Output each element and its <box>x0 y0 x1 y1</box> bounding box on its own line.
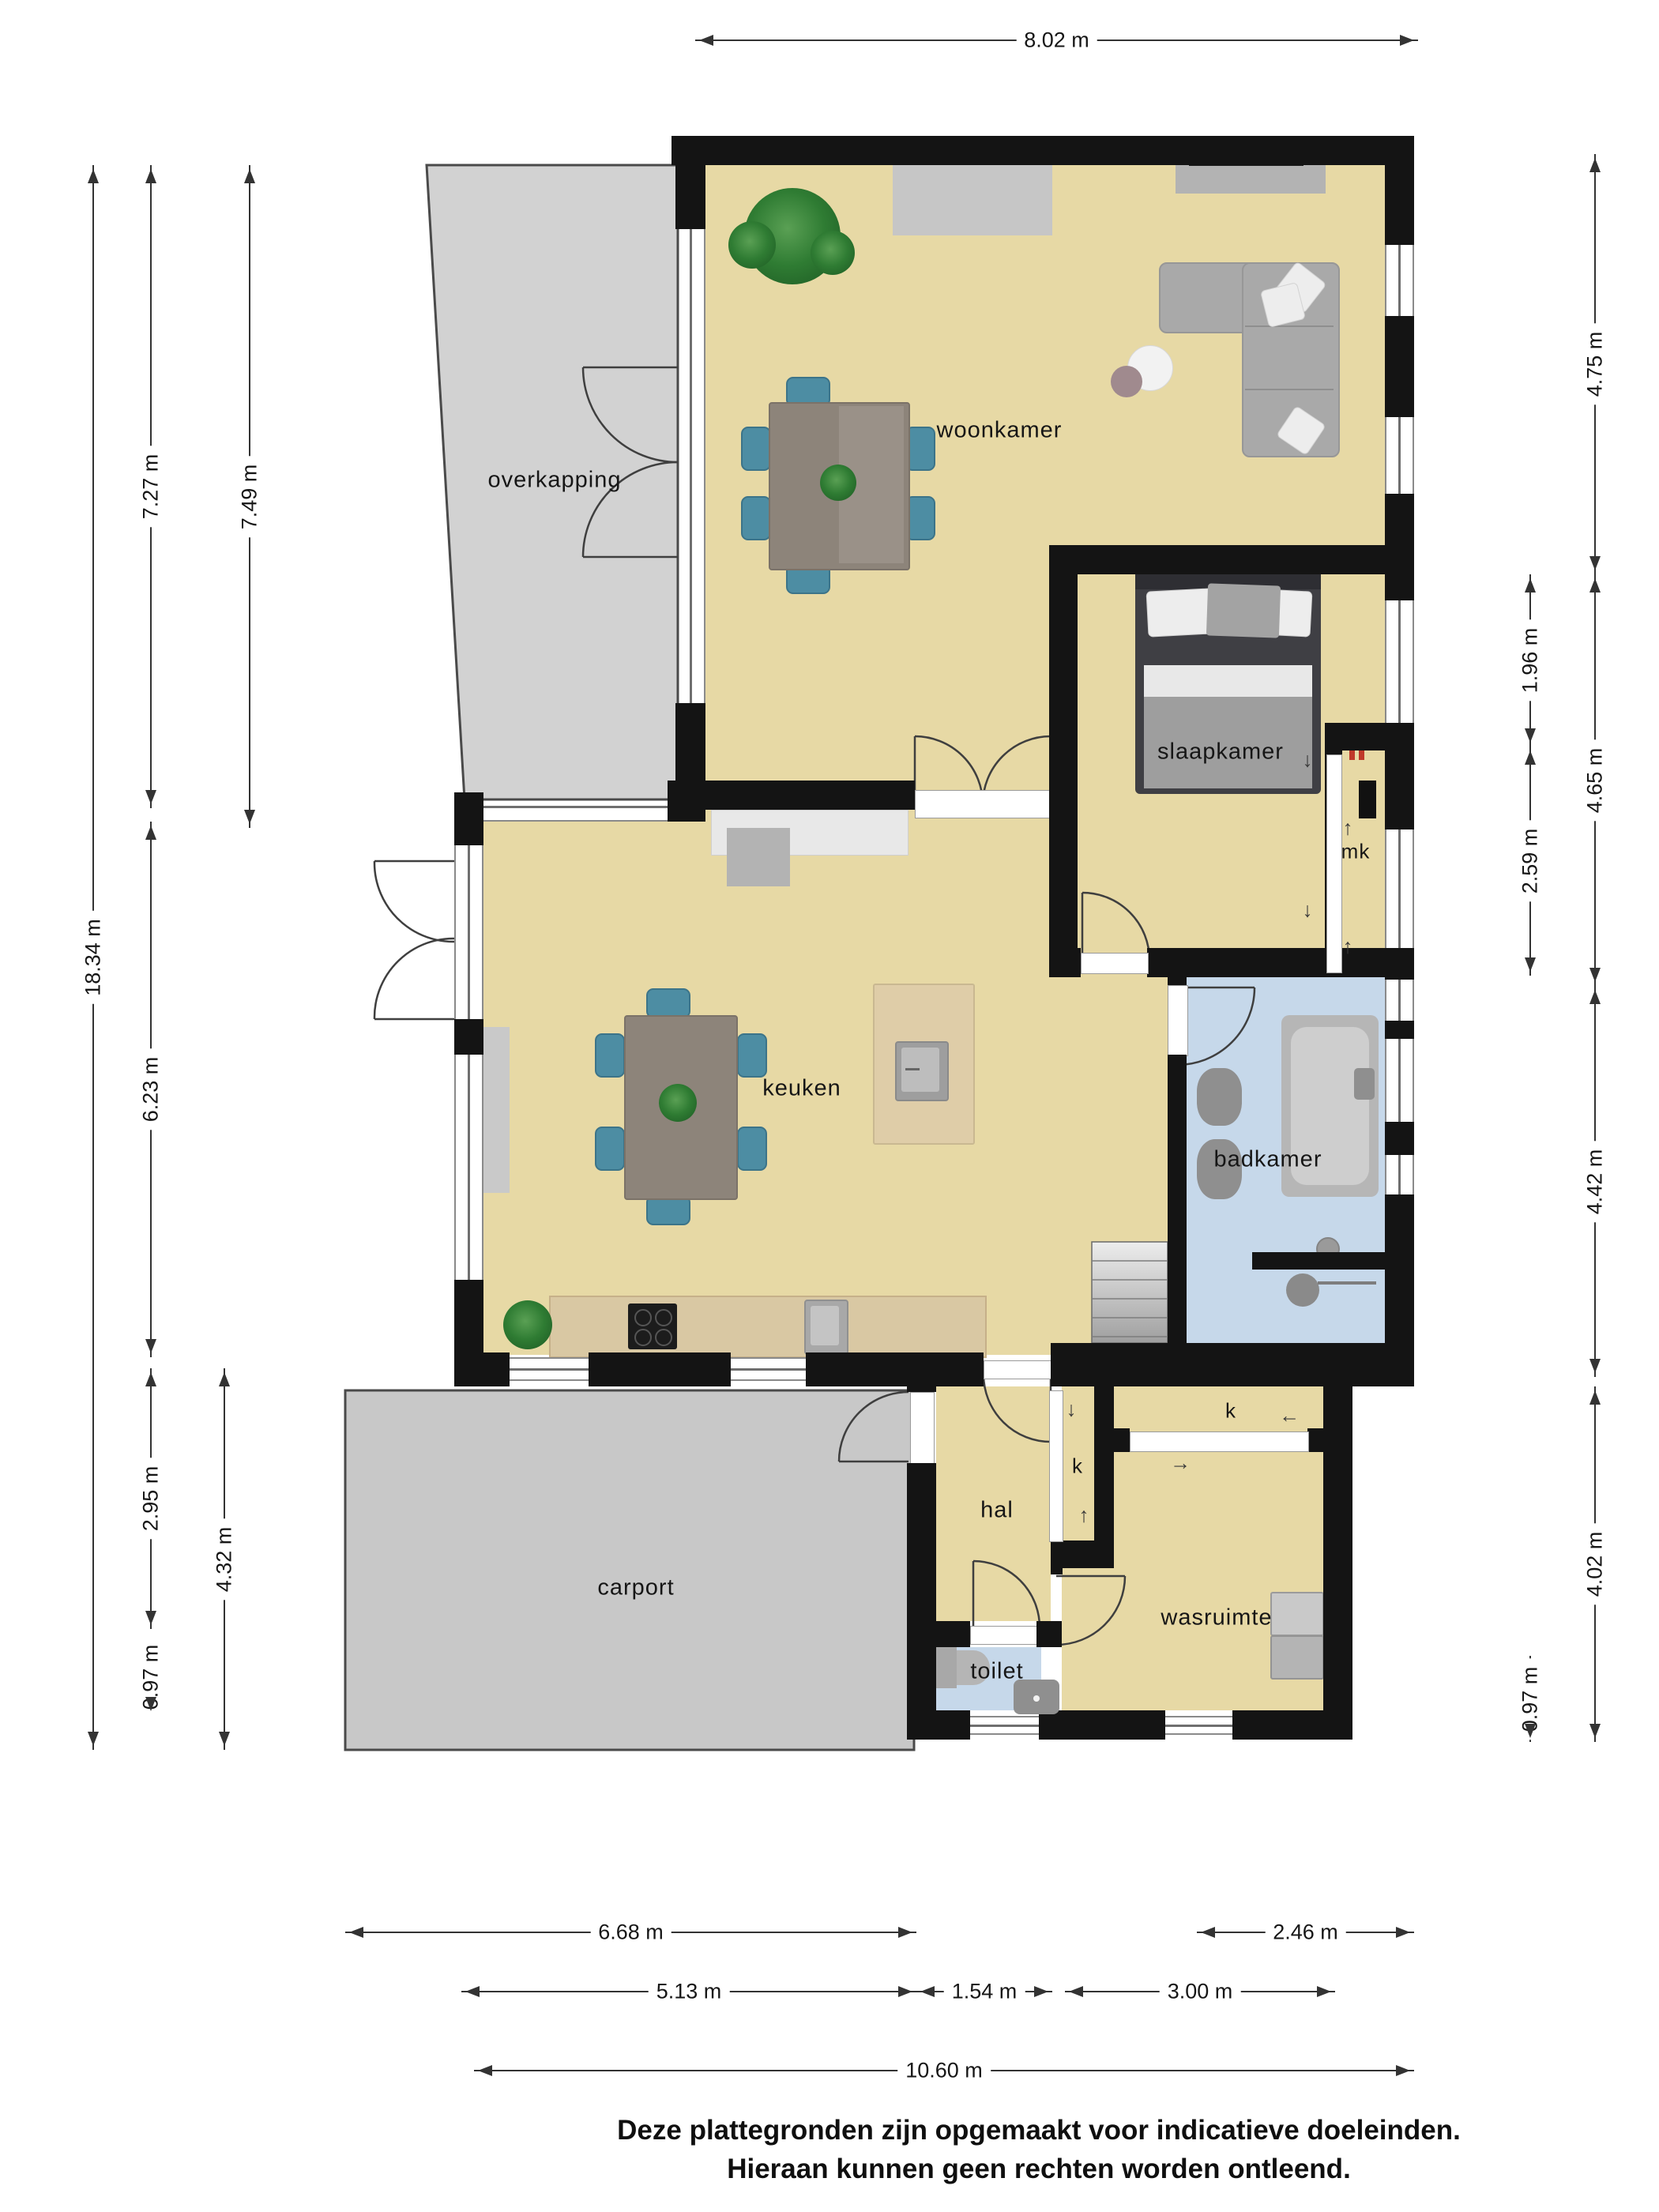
wall-hal-left <box>907 1386 936 1392</box>
kitchen-chair <box>646 988 690 1018</box>
dining-chair <box>741 496 771 540</box>
wall-slaapkamer-bottom <box>1049 948 1081 977</box>
room-label-wasruimte: wasruimte <box>1161 1605 1272 1631</box>
door-threshold-carport <box>910 1392 935 1465</box>
mk-sliding-door <box>1326 754 1342 973</box>
dryer <box>1270 1635 1324 1680</box>
room-label-keuken: keuken <box>762 1076 841 1102</box>
dimension-label: 8.02 m <box>1016 27 1097 55</box>
k2-slider-post <box>1114 1428 1130 1452</box>
window-right <box>1385 245 1414 316</box>
dimension-label: 1.96 m <box>1517 620 1544 702</box>
sofa-seam-2 <box>1245 389 1334 390</box>
wall-keuken-left <box>454 1019 483 1055</box>
room-label-k2: k <box>1225 1399 1236 1424</box>
dimension-label: 6.23 m <box>137 1049 165 1130</box>
window-right <box>1385 600 1414 723</box>
room-label-slaapkamer: slaapkamer <box>1157 739 1284 766</box>
window-bottom <box>970 1716 1039 1735</box>
bed-sheet <box>1144 665 1312 697</box>
dimension-label: 7.27 m <box>137 446 165 528</box>
mk-arrow-up-icon: ↑ <box>1343 935 1353 959</box>
side-stool <box>1111 366 1142 397</box>
meter-led-icon <box>1359 750 1364 760</box>
room-label-woonkamer: woonkamer <box>937 418 1063 444</box>
sofa-seam-1 <box>1245 325 1334 327</box>
dimension-label: 10.60 m <box>897 2057 991 2085</box>
dimension-label: 4.02 m <box>1582 1524 1609 1605</box>
wall-keuken-bottom <box>806 1352 984 1386</box>
dining-chair <box>741 427 771 471</box>
cooktop-burner <box>634 1329 652 1346</box>
wall-keuken-bottom <box>454 1352 510 1386</box>
window-right <box>1385 1155 1414 1194</box>
window-right <box>1385 829 1414 960</box>
kitchen-chair <box>595 1033 625 1078</box>
floorplan-canvas: ↓ ↑ ← → ↓ ↑ ↓ ↑ woonkamer overkapping sl… <box>0 0 1659 2212</box>
k2-slider-post <box>1307 1428 1323 1452</box>
dimension-right-4-42: 4.42 m <box>1594 986 1596 1377</box>
wall-corridor-bottom <box>1051 1343 1168 1386</box>
dimension-label: 5.13 m <box>649 1978 730 2006</box>
kitchen-chair <box>737 1033 767 1078</box>
dimension-left-0-97: 0.97 m <box>150 1639 152 1715</box>
dimension-top-8-02: 8.02 m <box>695 39 1418 41</box>
cooktop-burner <box>634 1309 652 1326</box>
counter-sink-basin <box>811 1306 839 1345</box>
door-threshold-slaapkamer <box>1081 953 1149 974</box>
room-label-k1: k <box>1072 1454 1083 1479</box>
window-right <box>1385 417 1414 494</box>
dimension-label: 1.54 m <box>944 1978 1025 2006</box>
dimension-right-4-75: 4.75 m <box>1594 154 1596 574</box>
dimension-bottom-3-00: 3.00 m <box>1065 1991 1335 1992</box>
door-threshold-badkamer <box>1168 985 1188 1056</box>
shower-arm-icon <box>1318 1281 1376 1285</box>
dimension-left-18-34: 18.34 m <box>92 165 94 1750</box>
dimension-left-7-27: 7.27 m <box>150 165 152 808</box>
door-threshold-toilet <box>970 1626 1038 1645</box>
dimension-right-2-59: 2.59 m <box>1529 747 1531 976</box>
wall-hal-left <box>907 1463 936 1740</box>
mk-arrow-down-icon: ↓ <box>1303 748 1313 773</box>
door-threshold-woonkamer-keuken <box>915 790 1052 818</box>
cooktop-burner <box>655 1329 672 1346</box>
window-right <box>1385 1039 1414 1122</box>
wall-k1-bottom <box>1051 1540 1114 1568</box>
window-keuken-left <box>454 1055 483 1280</box>
kitchen-plant-icon <box>503 1300 552 1349</box>
dimension-label: 0.97 m <box>1517 1658 1544 1740</box>
mk-arrow-down-icon: ↓ <box>1303 898 1313 923</box>
dimension-bottom-1-54: 1.54 m <box>916 1991 1052 1992</box>
kitchen-table-plant-icon <box>659 1084 697 1122</box>
kitchen-cabinet <box>727 828 790 886</box>
wall-bottom <box>907 1710 970 1740</box>
wall-keuken-bottom <box>589 1352 731 1386</box>
dimension-label: 18.34 m <box>80 911 107 1004</box>
k2-sliding-door <box>1130 1431 1309 1452</box>
toilet-sink-dot <box>1033 1695 1040 1702</box>
wall-keuken-left <box>454 1280 483 1355</box>
slide-arrow-left-icon: ← <box>1279 1404 1300 1428</box>
room-label-toilet: toilet <box>970 1659 1023 1685</box>
dimension-bottom-10-60: 10.60 m <box>474 2070 1414 2071</box>
island-faucet-icon <box>905 1068 920 1070</box>
window-bottom <box>1165 1716 1232 1735</box>
kitchen-counter <box>549 1296 987 1358</box>
meter-led-icon <box>1349 750 1355 760</box>
wall-right <box>1385 136 1414 245</box>
staircase <box>1092 1242 1168 1343</box>
dimension-bottom-6-68: 6.68 m <box>345 1932 916 1933</box>
dimension-label: 4.42 m <box>1582 1141 1609 1222</box>
window-right <box>1385 980 1414 1021</box>
mk-arrow-up-icon: ↑ <box>1343 816 1353 841</box>
room-label-mk: mk <box>1341 840 1371 864</box>
wall-overkapping-corner <box>668 781 705 822</box>
dimension-left-4-32: 4.32 m <box>224 1368 225 1750</box>
wall-right <box>1385 1122 1414 1155</box>
wall-woonkamer-keuken <box>705 781 915 810</box>
room-label-hal: hal <box>980 1498 1014 1524</box>
slide-arrow-up-icon: ↑ <box>1079 1503 1089 1528</box>
kitchen-chair <box>737 1127 767 1171</box>
washer <box>1270 1592 1324 1636</box>
wall-left-glass-end <box>675 165 705 229</box>
bathroom-sink <box>1197 1068 1242 1126</box>
carport-area <box>345 1390 914 1750</box>
dimension-right-0-97: 0.97 m <box>1529 1656 1531 1742</box>
window-keuken-bottom <box>731 1357 806 1381</box>
shower-drain-icon <box>1286 1273 1319 1307</box>
slide-arrow-down-icon: ↓ <box>1066 1398 1077 1422</box>
wall-right <box>1385 316 1414 417</box>
wall-shower-stub <box>1252 1252 1385 1270</box>
dimension-label: 3.00 m <box>1160 1978 1241 2006</box>
rug <box>893 164 1052 235</box>
dimension-left-7-49: 7.49 m <box>249 165 250 828</box>
wall-hal-wasruimte <box>1051 1568 1063 1574</box>
table-plant-icon <box>820 465 856 501</box>
wall-slaapkamer-left <box>1049 545 1078 977</box>
bathtub-faucet-icon <box>1354 1068 1375 1100</box>
wall-wasruimte-right <box>1323 1386 1352 1740</box>
wall-badkamer-bottom <box>1168 1343 1414 1386</box>
large-plant-leaf <box>811 231 855 275</box>
large-plant-leaf <box>728 221 776 269</box>
toilet-tank <box>936 1647 957 1688</box>
dimension-label: 2.95 m <box>137 1458 165 1540</box>
dimension-right-4-02: 4.02 m <box>1594 1386 1596 1742</box>
room-label-badkamer: badkamer <box>1214 1147 1322 1173</box>
dimension-label: 4.32 m <box>211 1518 239 1600</box>
window-keuken-left <box>454 845 483 1019</box>
wall-slaapkamer-bottom <box>1147 948 1414 977</box>
wall-keuken-left <box>454 804 483 845</box>
dimension-label: 6.68 m <box>590 1919 671 1947</box>
wall-top <box>671 136 1414 165</box>
dimension-left-2-95: 2.95 m <box>150 1368 152 1629</box>
dimension-label: 4.65 m <box>1582 739 1609 821</box>
slide-arrow-right-icon: → <box>1170 1451 1191 1476</box>
dimension-label: 2.59 m <box>1517 821 1544 902</box>
dimension-label: 7.49 m <box>236 456 264 537</box>
dimension-right-4-65: 4.65 m <box>1594 574 1596 986</box>
dimension-left-6-23: 6.23 m <box>150 822 152 1357</box>
wall-slaapkamer-top <box>1049 545 1414 574</box>
bed-throw-cushion <box>1206 583 1281 638</box>
dimension-bottom-2-46: 2.46 m <box>1197 1932 1414 1933</box>
wall-badkamer-left <box>1168 977 1187 985</box>
meter-box-icon <box>1359 781 1376 818</box>
room-label-carport: carport <box>597 1575 674 1601</box>
wall-bottom <box>1039 1710 1165 1740</box>
dimension-bottom-5-13: 5.13 m <box>461 1991 916 1992</box>
dimension-label: 0.97 m <box>137 1637 165 1718</box>
door-threshold-hal <box>984 1360 1052 1379</box>
wall-badkamer-left <box>1168 1055 1187 1343</box>
wall-toilet-top <box>1036 1621 1062 1647</box>
dimension-right-1-96: 1.96 m <box>1529 574 1531 747</box>
room-label-overkapping: overkapping <box>488 468 622 494</box>
kitchen-chair <box>595 1127 625 1171</box>
cooktop-burner <box>655 1309 672 1326</box>
wall-right <box>1385 1021 1414 1039</box>
wall-toilet-top <box>936 1621 970 1647</box>
k1-sliding-door <box>1049 1390 1063 1542</box>
dimension-label: 2.46 m <box>1265 1919 1346 1947</box>
dimension-label: 4.75 m <box>1582 324 1609 405</box>
window-keuken-bottom <box>510 1357 589 1381</box>
